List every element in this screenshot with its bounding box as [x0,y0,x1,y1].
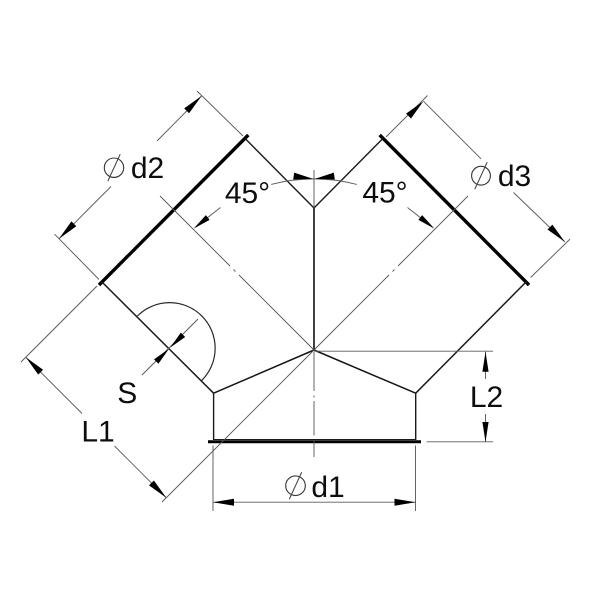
svg-text:L2: L2 [470,381,503,414]
svg-text:45°: 45° [362,176,407,209]
svg-text:S: S [117,377,137,410]
svg-text:d3: d3 [498,160,531,193]
svg-text:L1: L1 [81,416,114,449]
svg-text:d2: d2 [131,152,164,185]
svg-text:45°: 45° [225,177,270,210]
svg-text:d1: d1 [311,471,344,504]
